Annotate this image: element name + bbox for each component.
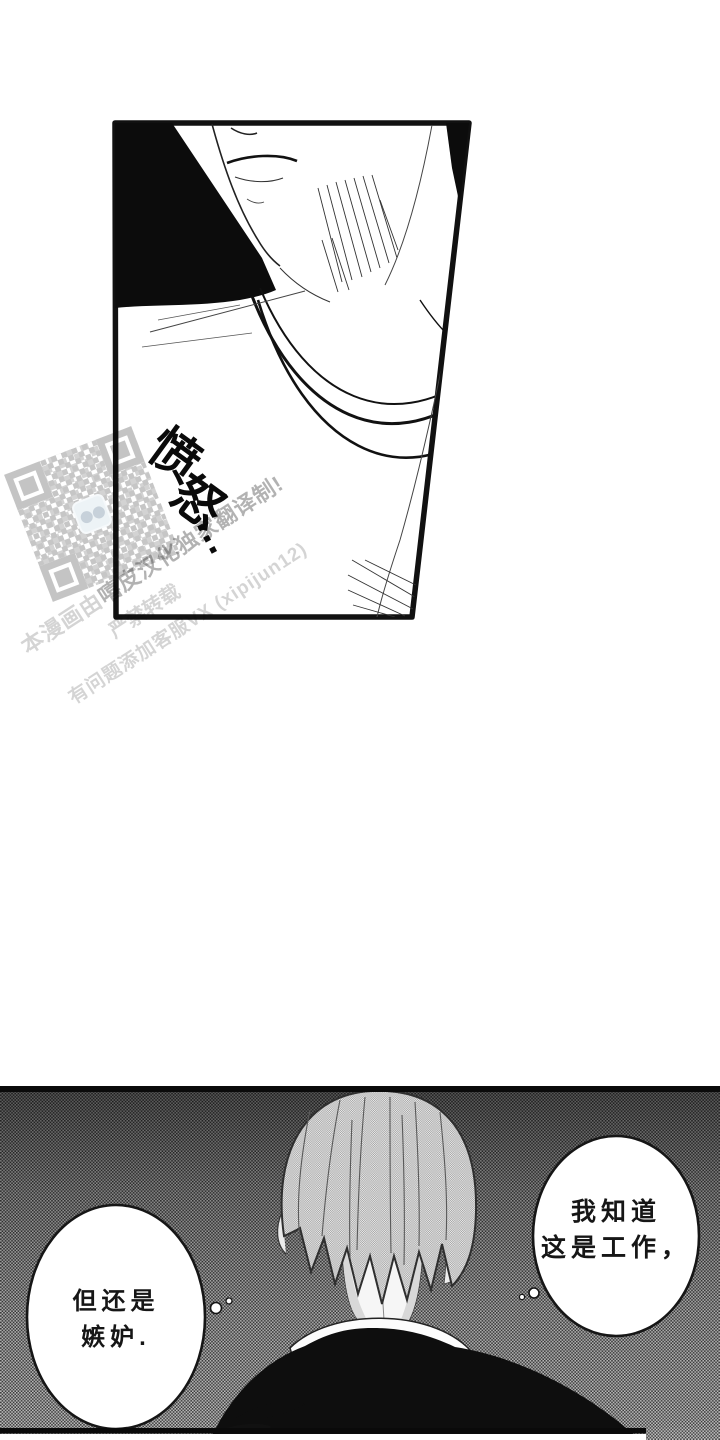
- thought-left-line1: 但还是: [24, 1284, 208, 1320]
- thought-right-line1: 我知道: [526, 1194, 706, 1230]
- panel-bottom-top-border: [0, 1086, 720, 1092]
- panel-top: [115, 123, 478, 617]
- manga-page: 愤 怒 … 我知道 这是工作， 但还是 嫉妒. 本漫画由嘻皮汉化独家翻译制! 严…: [0, 0, 720, 1440]
- thought-left-line2: 嫉妒.: [24, 1320, 208, 1356]
- panel-bottom-bottom-border: [0, 1428, 646, 1434]
- thought-right-line2: 这是工作，: [526, 1230, 706, 1266]
- thought-text-left: 但还是 嫉妒.: [24, 1284, 208, 1356]
- thought-text-right: 我知道 这是工作，: [526, 1194, 706, 1266]
